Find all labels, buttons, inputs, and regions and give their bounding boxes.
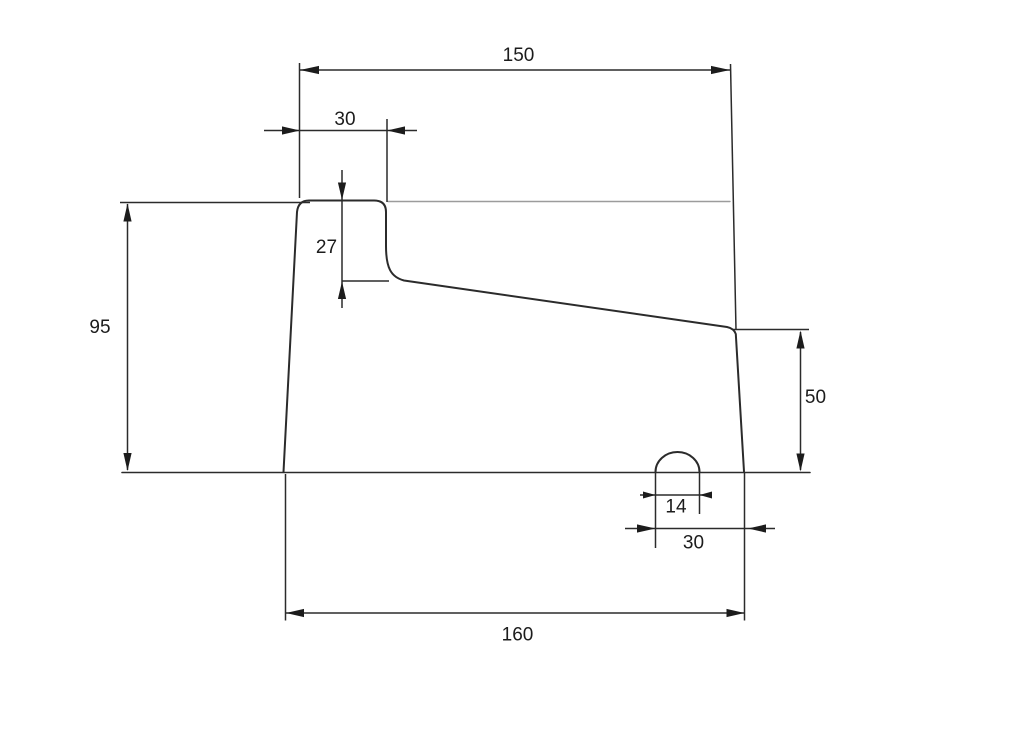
- svg-text:30: 30: [683, 533, 704, 554]
- svg-text:30: 30: [334, 109, 355, 130]
- svg-text:27: 27: [316, 237, 337, 258]
- svg-text:160: 160: [502, 625, 534, 646]
- svg-text:50: 50: [805, 387, 826, 408]
- svg-text:150: 150: [503, 45, 535, 66]
- svg-text:95: 95: [89, 317, 110, 338]
- svg-text:14: 14: [665, 497, 687, 518]
